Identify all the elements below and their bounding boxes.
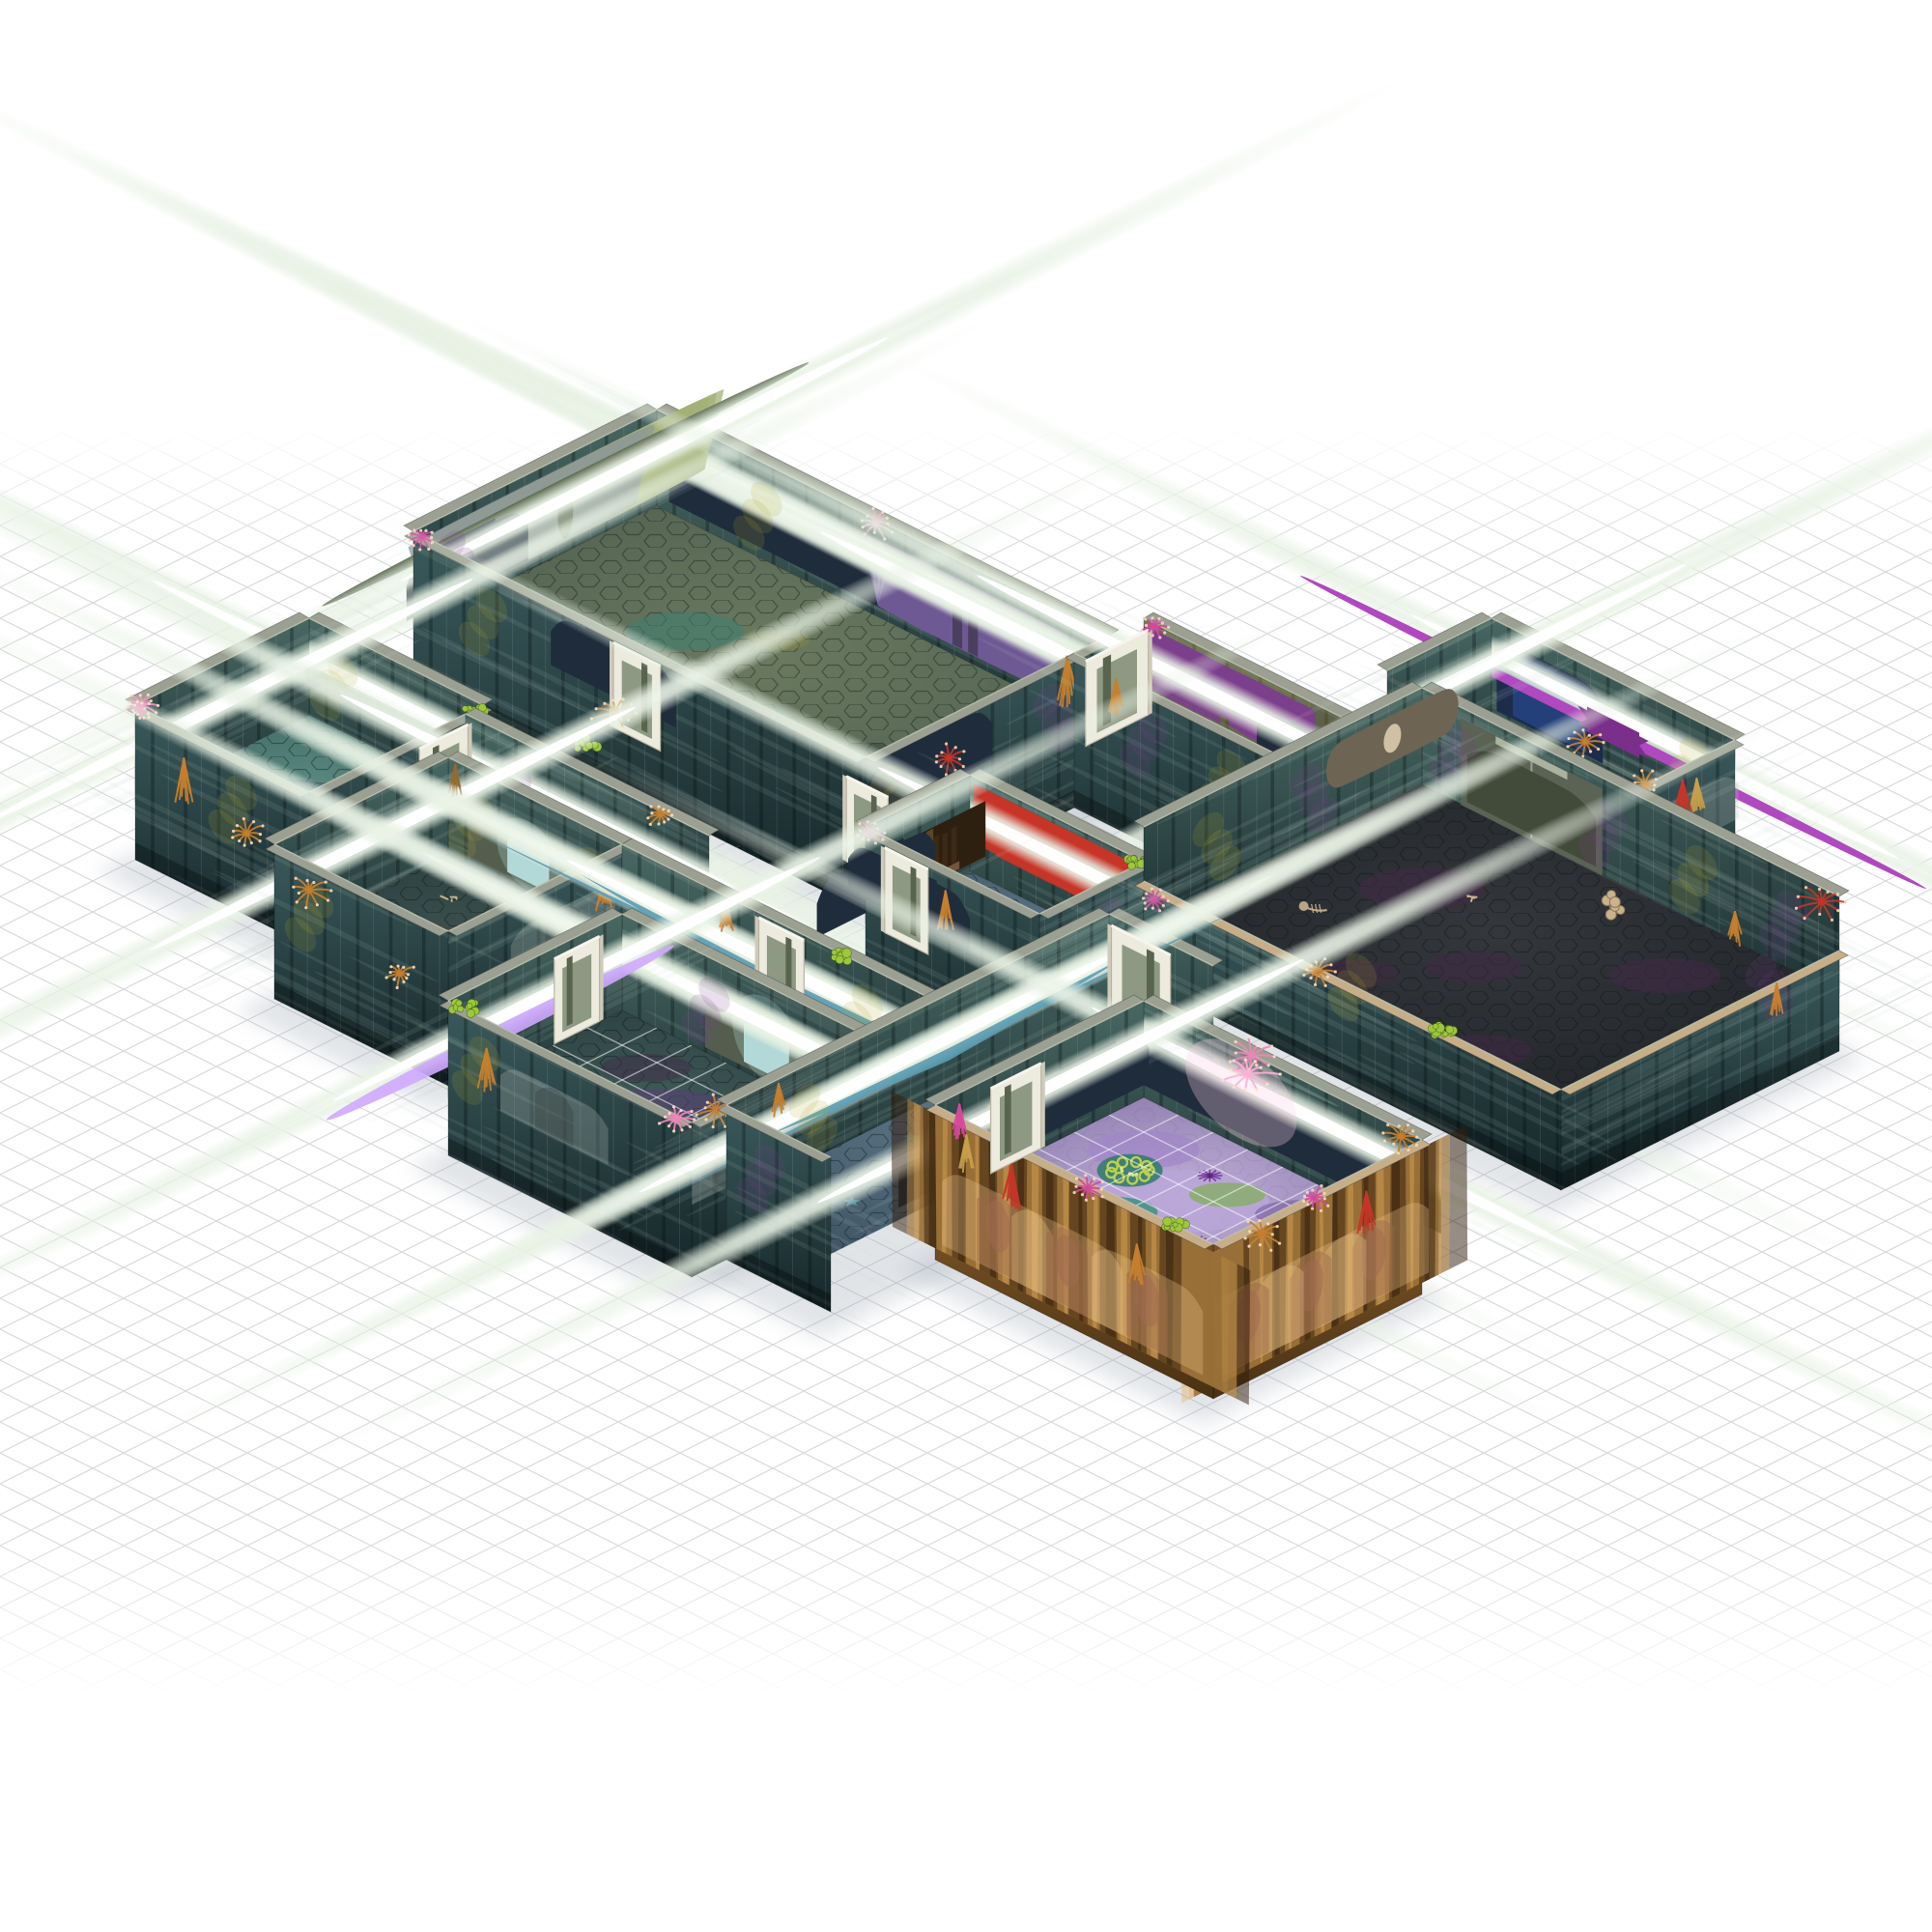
product-photo-canvas xyxy=(0,0,1932,1932)
dungeon-terrain-illustration xyxy=(0,0,1932,1932)
